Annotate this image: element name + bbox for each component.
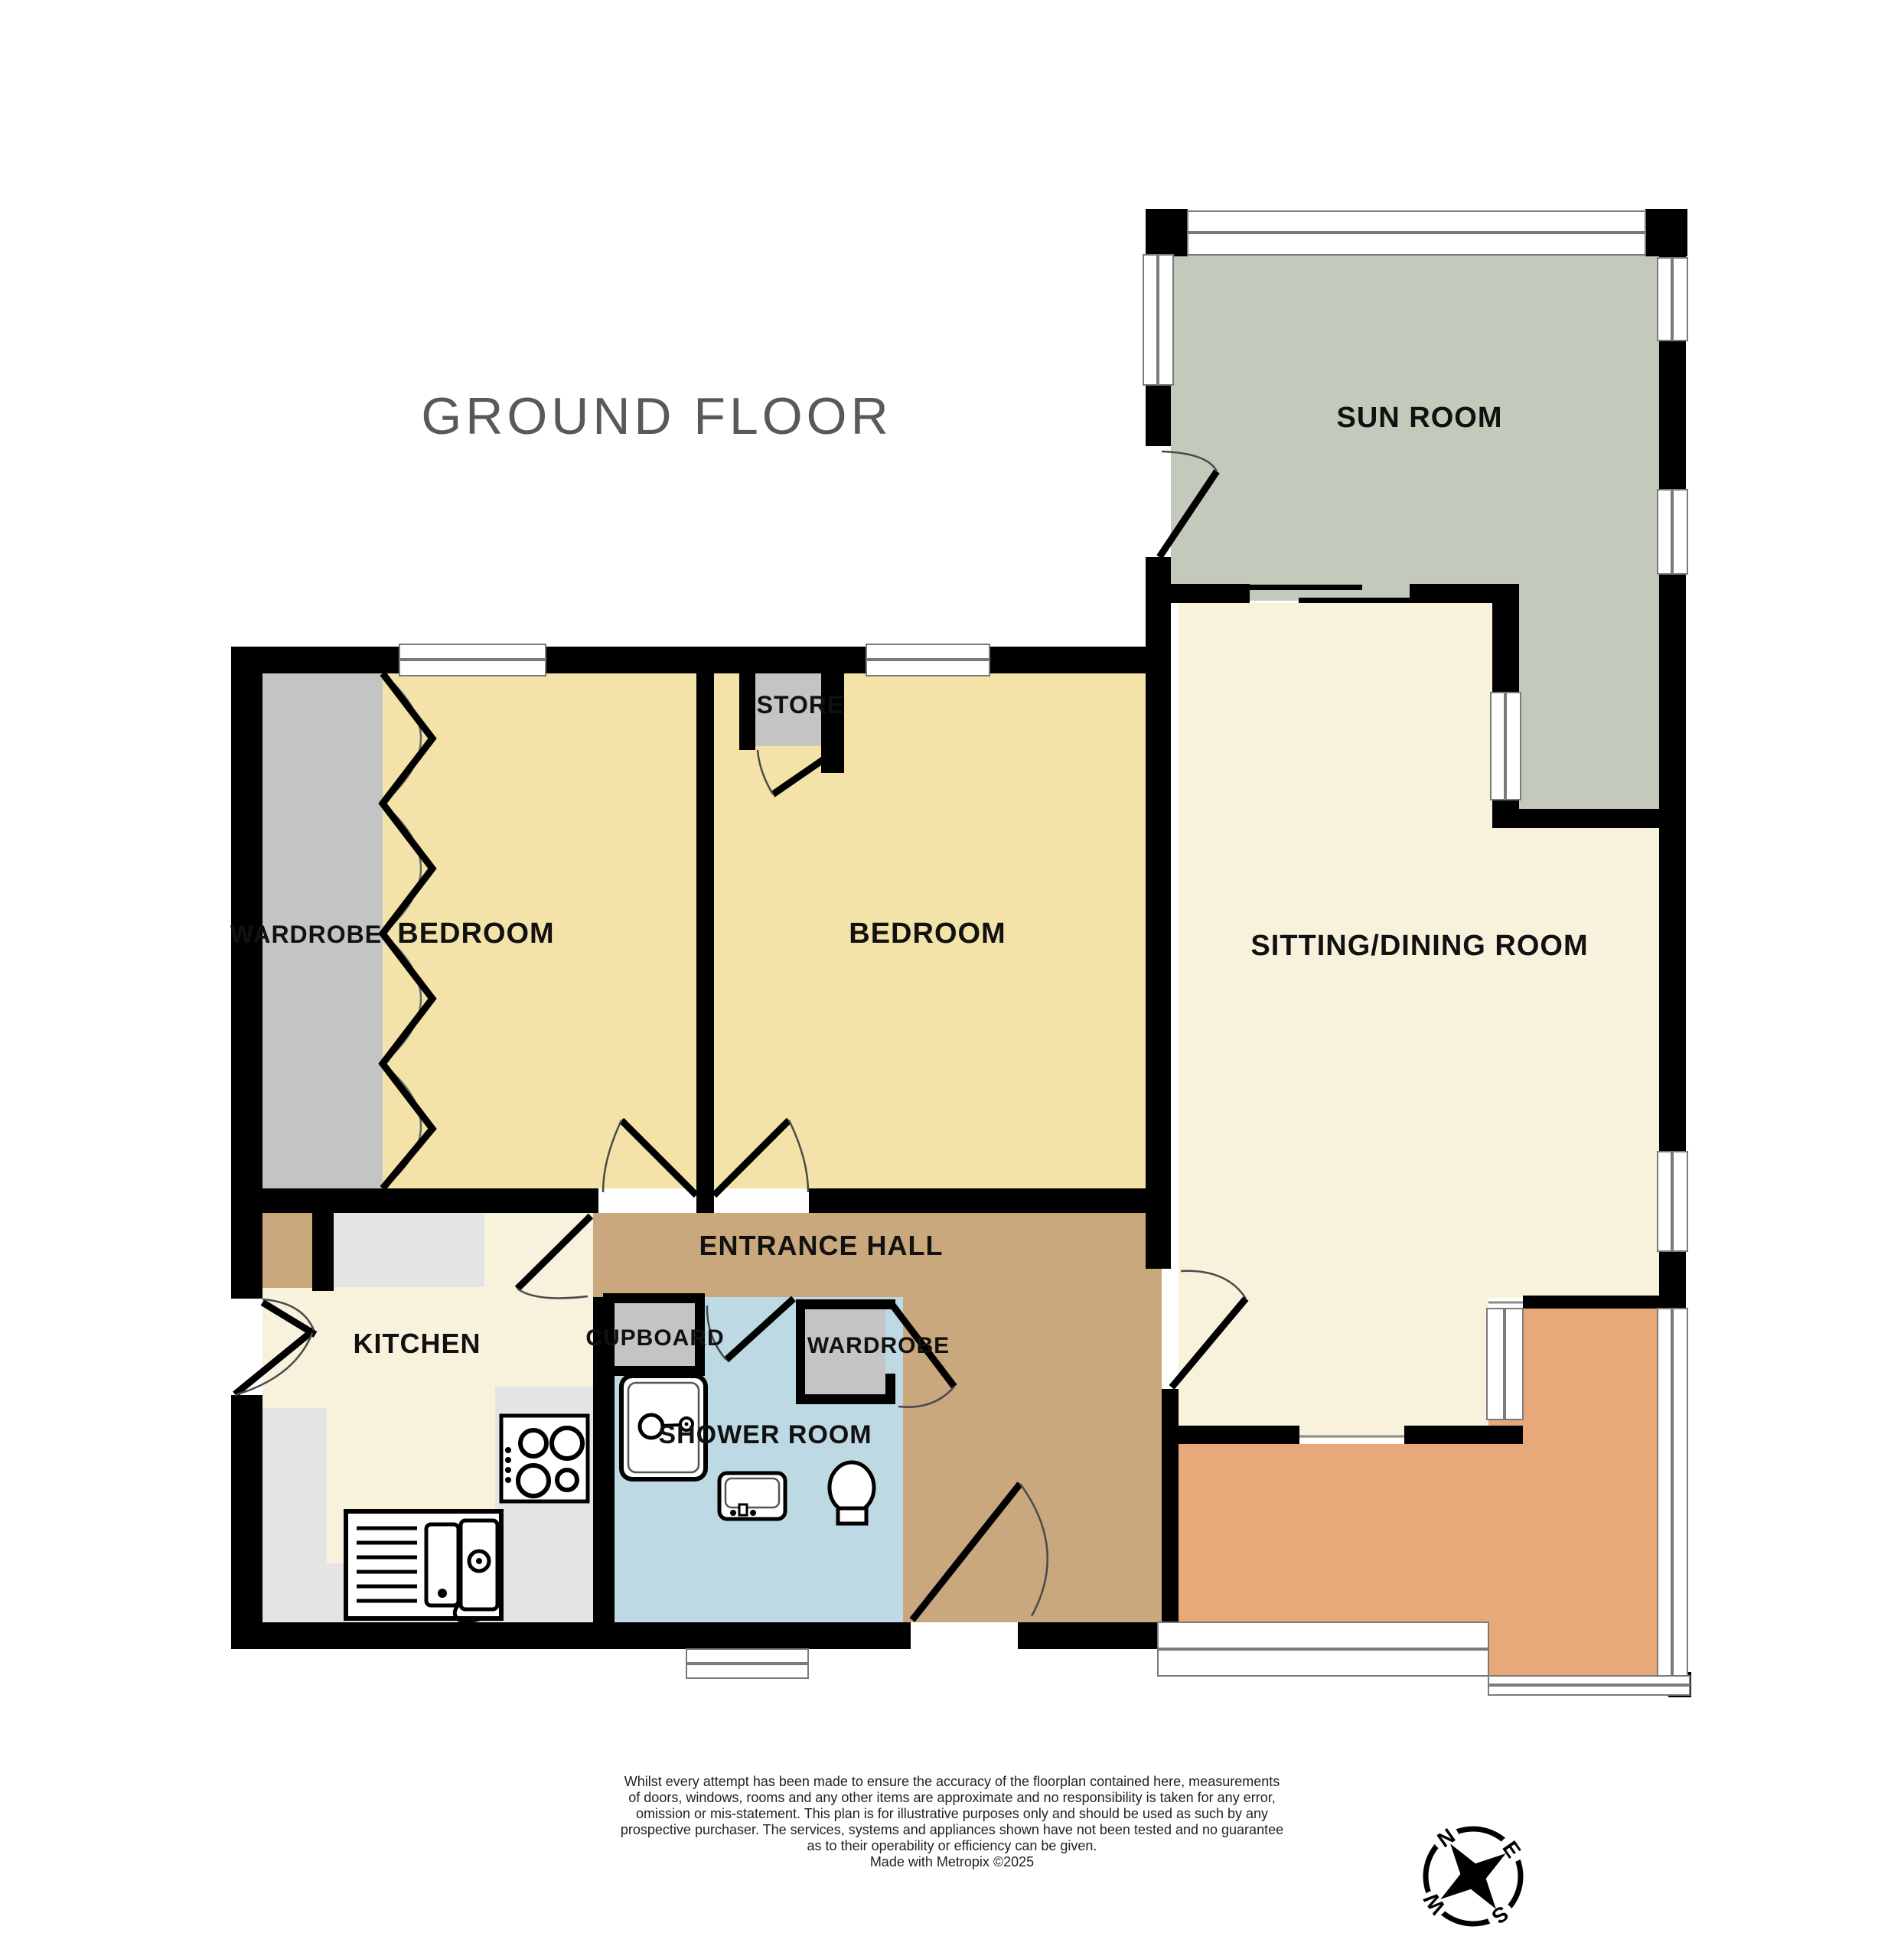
window-right-2 — [1658, 490, 1687, 574]
window-bedroom2 — [866, 644, 989, 676]
disclaimer-line: prospective purchaser. The services, sys… — [0, 1822, 1904, 1838]
window-sitting-conservatory — [1487, 1309, 1523, 1420]
kitchen-counter-top — [334, 1208, 484, 1287]
disclaimer-line: of doors, windows, rooms and any other i… — [0, 1790, 1904, 1806]
entrance-hall-label: ENTRANCE HALL — [699, 1230, 944, 1261]
window-right-sitting — [1658, 1152, 1687, 1251]
window-sunroom-left — [1143, 255, 1173, 385]
shower-room-label: SHOWER ROOM — [658, 1420, 872, 1449]
kitchen-label: KITCHEN — [354, 1328, 481, 1359]
room-lobby-floor — [262, 1203, 312, 1288]
sunroom-label: SUN ROOM — [1337, 402, 1503, 434]
floors — [262, 253, 1659, 1676]
window-pier — [1491, 693, 1521, 800]
disclaimer-credit: Made with Metropix ©2025 — [0, 1854, 1904, 1870]
window-conservatory-bottom — [1158, 1622, 1488, 1676]
disclaimer-line: omission or mis-statement. This plan is … — [0, 1806, 1904, 1822]
disclaimer-line: Whilst every attempt has been made to en… — [0, 1774, 1904, 1790]
toilet-icon — [830, 1462, 874, 1524]
window-right-1 — [1658, 258, 1687, 341]
window-sunroom-top — [1188, 211, 1645, 255]
sink-icon — [346, 1511, 501, 1622]
window-bedroom1 — [399, 644, 546, 676]
cupboard-label: CUPBOARD — [585, 1325, 724, 1351]
bedroom1-label: BEDROOM — [397, 918, 554, 950]
bedroom-wardrobe-label: WARDROBE — [230, 921, 382, 948]
window-shower-bottom — [686, 1649, 808, 1678]
store-label: STORE — [757, 691, 845, 719]
disclaimer-line: as to their operability or efficiency ca… — [0, 1838, 1904, 1854]
window-conservatory-bottom-right — [1488, 1676, 1690, 1695]
basin-icon — [719, 1473, 785, 1519]
window-conservatory-right — [1658, 1309, 1687, 1676]
bedroom2-label: BEDROOM — [849, 918, 1006, 950]
hall-wardrobe-label: WARDROBE — [807, 1333, 950, 1358]
sitting-dining-label: SITTING/DINING ROOM — [1250, 930, 1588, 962]
disclaimer-text: Whilst every attempt has been made to en… — [0, 1774, 1904, 1870]
floorplan: SUN ROOM SITTING/DINING ROOM BEDROOM BED… — [0, 0, 1904, 1959]
hob-icon — [501, 1416, 588, 1501]
